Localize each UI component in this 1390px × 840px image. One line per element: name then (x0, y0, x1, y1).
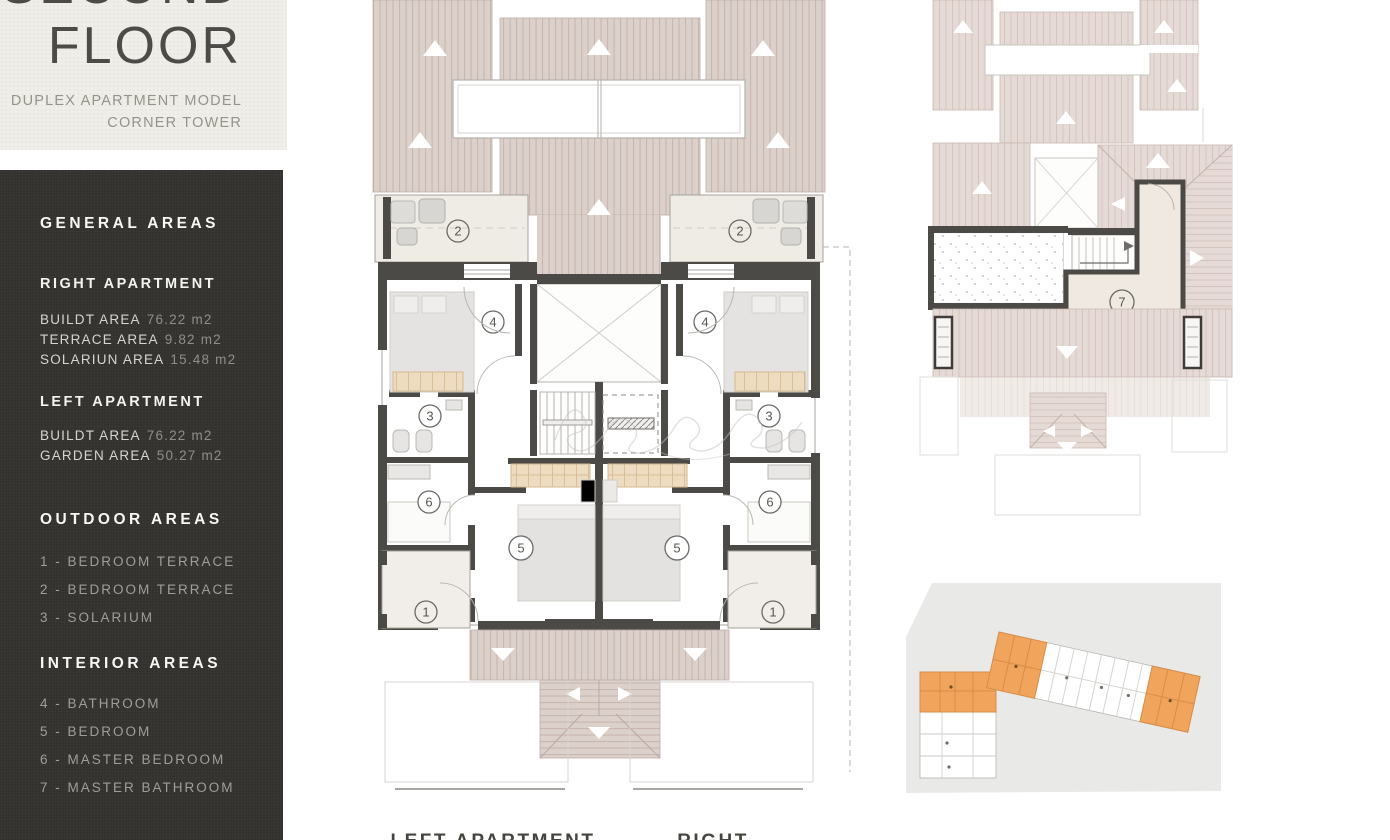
interior-areas-heading: INTERIOR AREAS (40, 654, 283, 674)
svg-text:1: 1 (769, 605, 776, 620)
terrace-1-right: 1 (728, 551, 820, 628)
subtitle-tower: CORNER TOWER (2, 112, 242, 134)
svg-text:3: 3 (426, 409, 433, 424)
left-apartment-row: GARDEN AREA50.27 m2 (40, 446, 283, 466)
right-apartment-row: BUILDT AREA76.22 m2 (40, 310, 283, 330)
outdoor-areas-heading: OUTDOOR AREAS (40, 510, 283, 530)
roof-skylight-band (453, 80, 745, 138)
interior-item: 5 - BEDROOM (40, 718, 283, 746)
main-floor-plan-drawing: 2 2 (360, 0, 890, 840)
outdoor-item: 3 - SOLARIUM (40, 604, 283, 632)
site-plan-drawing (895, 575, 1235, 805)
room-label-6: 6 (759, 491, 781, 513)
title-line-second: SECOND (2, 0, 242, 16)
roof-bottom-band (933, 309, 1232, 377)
interior-item: 6 - MASTER BEDROOM (40, 746, 283, 774)
svg-text:5: 5 (517, 541, 524, 556)
right-apartment-row: TERRACE AREA9.82 m2 (40, 330, 283, 350)
areas-sidebar: GENERAL AREAS RIGHT APARTMENT BUILDT ARE… (0, 170, 283, 840)
svg-text:1: 1 (422, 605, 429, 620)
room-label-5: 5 (509, 536, 533, 560)
roof-top (933, 0, 1203, 143)
subtitle-model: DUPLEX APARTMENT MODEL (2, 90, 242, 112)
roof-solarium-plan: 7 (900, 0, 1390, 530)
right-apartment-row: SOLARIUN AREA15.48 m2 (40, 350, 283, 370)
title-plate: SECOND FLOOR DUPLEX APARTMENT MODEL CORN… (0, 0, 287, 150)
interior-item: 7 - MASTER BATHROOM (40, 774, 283, 802)
svg-text:7: 7 (1118, 295, 1125, 310)
room-label-5: 5 (665, 536, 689, 560)
page-subtitle: DUPLEX APARTMENT MODEL CORNER TOWER (2, 90, 242, 134)
roof-plan-drawing: 7 (900, 0, 1390, 530)
roof-extensions (920, 377, 1227, 515)
room-label-6: 6 (418, 491, 440, 513)
floorplan-sheet: SECOND FLOOR DUPLEX APARTMENT MODEL CORN… (0, 0, 1390, 840)
general-areas-heading: GENERAL AREAS (40, 214, 283, 234)
svg-text:6: 6 (766, 495, 773, 510)
svg-text:6: 6 (425, 495, 432, 510)
caption-left-apartment: LEFT APARTMENT (388, 831, 598, 840)
terrace-2-left: 2 (375, 195, 528, 262)
svg-text:3: 3 (765, 409, 772, 424)
site-key-plan (895, 575, 1235, 805)
caption-right-apartment: RIGHT APARTMENT (608, 831, 818, 840)
left-apartment-row: BUILDT AREA76.22 m2 (40, 426, 283, 446)
svg-text:4: 4 (701, 315, 708, 330)
svg-text:2: 2 (454, 224, 461, 239)
svg-text:2: 2 (736, 224, 743, 239)
roof-bottom (470, 630, 729, 758)
main-floor-plan: 2 2 (360, 0, 890, 840)
terrace-1-left: 1 (378, 551, 470, 628)
title-line-floor: FLOOR (2, 16, 242, 76)
left-apartment-heading: LEFT APARTMENT (40, 392, 283, 412)
outdoor-item: 2 - BEDROOM TERRACE (40, 576, 283, 604)
svg-text:4: 4 (489, 315, 496, 330)
right-apartment-heading: RIGHT APARTMENT (40, 274, 283, 294)
terrace-2-right: 2 (670, 195, 823, 262)
outdoor-item: 1 - BEDROOM TERRACE (40, 548, 283, 576)
svg-text:5: 5 (673, 541, 680, 556)
light-well (537, 284, 661, 382)
site-building-left (920, 672, 996, 778)
solarium (928, 226, 1068, 310)
interior-item: 4 - BATHROOM (40, 690, 283, 718)
highlighted-unit (920, 672, 996, 712)
page-title: SECOND FLOOR (2, 0, 242, 76)
